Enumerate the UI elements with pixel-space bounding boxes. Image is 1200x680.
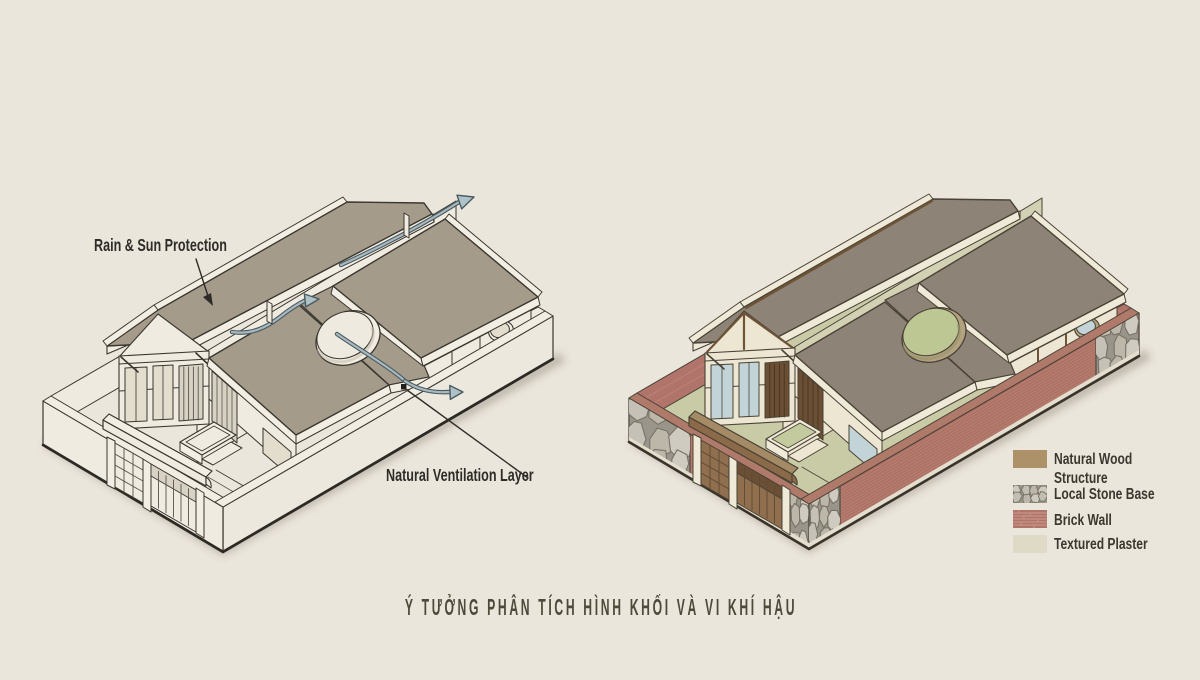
svg-text:Textured Plaster: Textured Plaster (1054, 535, 1148, 553)
svg-text:Local Stone Base: Local Stone Base (1054, 485, 1155, 503)
svg-text:Brick Wall: Brick Wall (1054, 511, 1112, 529)
svg-text:Rain & Sun Protection: Rain & Sun Protection (94, 236, 227, 256)
svg-text:Ý TƯỞNG PHÂN TÍCH HÌNH KHỐI VÀ: Ý TƯỞNG PHÂN TÍCH HÌNH KHỐI VÀ VI KHÍ HẬ… (405, 594, 797, 620)
svg-text:Natural Ventilation Layer: Natural Ventilation Layer (386, 466, 534, 486)
svg-text:Natural Wood: Natural Wood (1054, 450, 1132, 468)
